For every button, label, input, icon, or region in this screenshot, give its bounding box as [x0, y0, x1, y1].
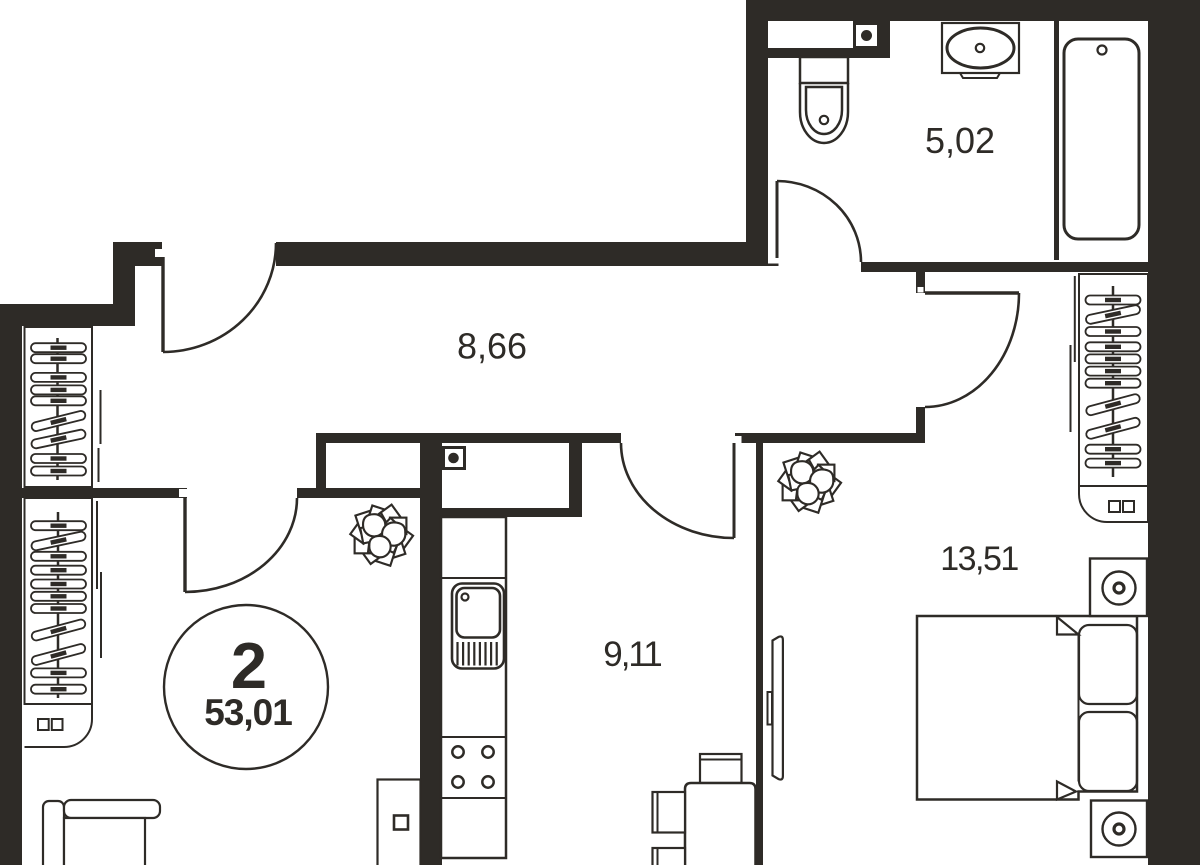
svg-text:5,02: 5,02 [925, 120, 995, 161]
svg-text:8,66: 8,66 [457, 326, 527, 367]
svg-text:13,51: 13,51 [940, 540, 1018, 578]
svg-text:53,01: 53,01 [204, 692, 292, 733]
svg-text:9,11: 9,11 [603, 635, 661, 674]
